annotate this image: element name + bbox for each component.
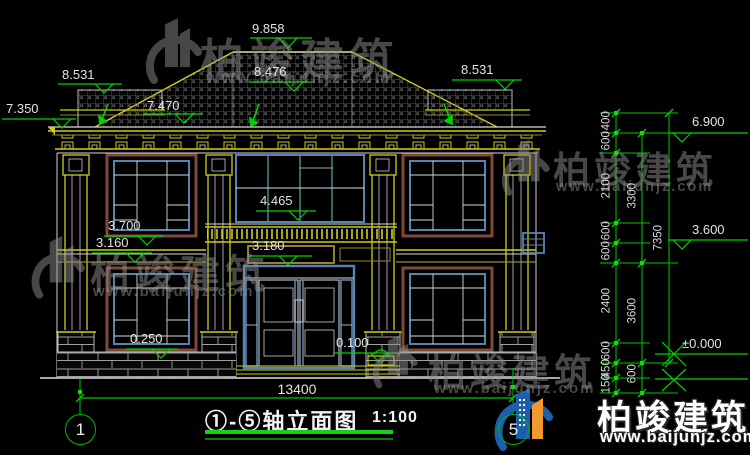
dim-middle-1: 3600 (627, 289, 639, 333)
elevation-label-center-upper: 8.476 (254, 65, 287, 78)
eave-cornice (48, 127, 546, 153)
elevation-label-left-floor2: 3.160 (96, 236, 129, 249)
axis-bubble-1: 1 (65, 414, 96, 445)
window-2f-center-band (236, 155, 364, 222)
dim-inner-1: 600 (601, 119, 613, 163)
watermark-url-bottom: www.baijunjz.com (434, 380, 595, 397)
cad-elevation-drawing: 柏竣建筑 www.baijunjz.com 柏竣建筑 www.baijunjz.… (0, 0, 750, 455)
dim-outer-0: 7350 (653, 216, 665, 260)
title-underline (205, 430, 393, 434)
elevation-label-balcony: 4.465 (260, 194, 293, 207)
dim-inner-5: 2400 (601, 279, 613, 323)
watermark-url-left: www.baijunjz.com (93, 283, 254, 300)
watermark-url-top: www.baijunjz.com (206, 70, 392, 88)
dim-inner-4: 600 (601, 229, 613, 273)
window-1f-right (403, 268, 492, 350)
elevation-label-right-parapet: 8.531 (461, 63, 494, 76)
elevation-label-left-lintel: 3.700 (108, 219, 141, 232)
overall-width-dim: 13400 (267, 381, 327, 397)
elevation-label-porch-floor: 0.100 (336, 336, 369, 349)
elevation-label-eave-mid: 7.470 (147, 99, 180, 112)
elevation-label-right-upper: 6.900 (692, 115, 725, 128)
title-underline-2 (205, 438, 393, 440)
dim-inner-2: 2100 (601, 164, 613, 208)
dim-middle-0: 3300 (627, 174, 639, 218)
elevation-label-right-floor2: 3.600 (692, 223, 725, 236)
elevation-label-ground: ±0.000 (682, 337, 722, 350)
axis-number-5: 5 (509, 420, 518, 440)
elevation-label-window-sill: 0.250 (130, 332, 163, 345)
drawing-scale: 1:100 (372, 409, 418, 427)
logo-url-text: www.baijunjz.com (600, 428, 750, 447)
axis-number-1: 1 (76, 420, 85, 440)
elevation-label-left-parapet: 8.531 (62, 68, 95, 81)
elevation-label-porch-beam: 3.180 (252, 239, 285, 252)
axis-bubble-5: 5 (498, 414, 529, 445)
elevation-label-ridge: 9.858 (252, 22, 285, 35)
window-2f-right (403, 155, 492, 236)
elevation-label-eave-left: 7.350 (6, 102, 39, 115)
